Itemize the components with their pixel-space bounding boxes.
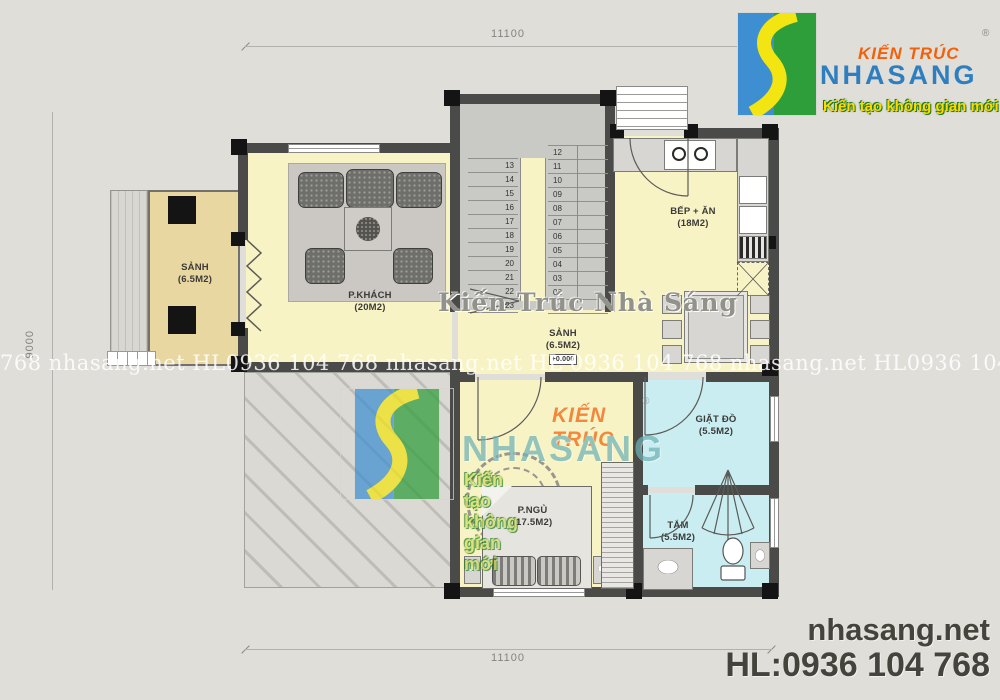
footer-website: nhasang.net <box>725 614 990 647</box>
floor-plan-canvas: 11100 11100 9000 <box>0 0 1000 700</box>
brand-name: NHASANG <box>462 428 665 470</box>
footer-contact: nhasang.net HL:0936 104 768 <box>725 614 990 684</box>
brand-s-icon <box>340 388 454 500</box>
watermark-row: 768 nhasang.net HL0936 104 768 nhasang.n… <box>0 351 1000 375</box>
brand-tagline: Kiến tạo không gian mới <box>823 98 999 115</box>
brand-tagline: Kiến tạo không gian mới <box>464 470 518 575</box>
registered-icon: ® <box>642 396 649 407</box>
registered-icon: ® <box>982 28 989 39</box>
footer-hotline: HL:0936 104 768 <box>725 647 990 684</box>
brand-name: NHASANG <box>820 60 978 91</box>
brand-s-icon <box>737 12 817 116</box>
watermark-center-title: Kiến Trúc Nhà Sáng <box>438 288 738 317</box>
